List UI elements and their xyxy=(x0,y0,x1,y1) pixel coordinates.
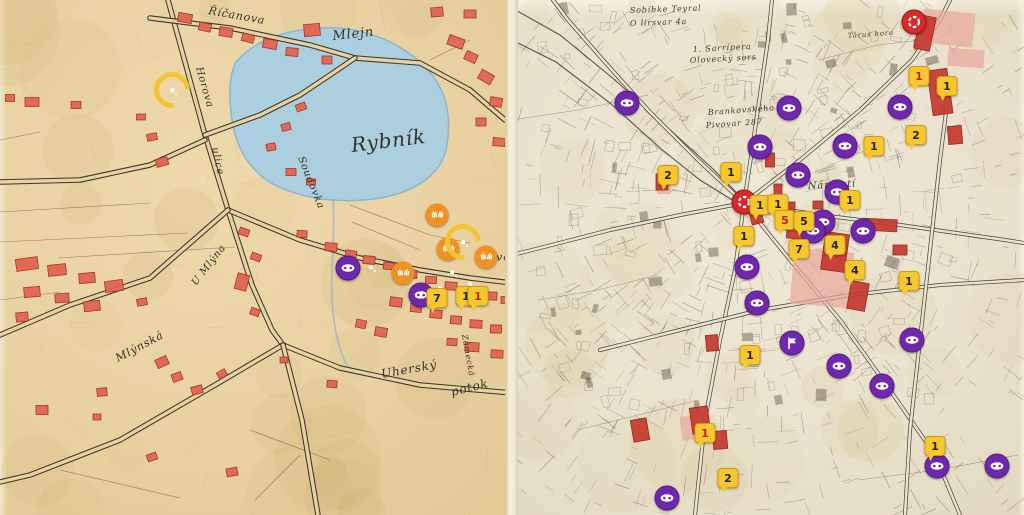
marker-purple-heritage[interactable] xyxy=(900,328,925,353)
marker-cluster-count[interactable]: 4 xyxy=(845,260,866,280)
marker-purple-heritage[interactable] xyxy=(827,354,852,379)
cluster-count-pin: 1 xyxy=(925,436,946,456)
cluster-count-value: 1 xyxy=(905,276,913,287)
marker-cluster-count[interactable]: 2 xyxy=(658,165,679,185)
marker-purple-heritage[interactable] xyxy=(888,95,913,120)
spectacles-icon xyxy=(832,361,847,372)
marker-cluster-count[interactable]: 4 xyxy=(825,235,846,255)
cluster-count-value: 1 xyxy=(870,141,878,152)
marker-purple-heritage[interactable] xyxy=(735,255,760,280)
cluster-count-pin: 7 xyxy=(427,288,448,308)
spectacles-icon xyxy=(791,170,806,181)
marker-purple-heritage[interactable] xyxy=(748,135,773,160)
cluster-count-pin: 1 xyxy=(734,226,755,246)
marker-purple-heritage[interactable] xyxy=(870,374,895,399)
cluster-count-value: 1 xyxy=(756,200,764,211)
cluster-count-value: 1 xyxy=(701,428,709,439)
spectacles-icon xyxy=(893,102,908,113)
spectacles-icon xyxy=(341,263,356,274)
cluster-count-value: 5 xyxy=(800,216,808,227)
cluster-count-value: 1 xyxy=(474,291,482,302)
marker-cluster-count[interactable]: 1 xyxy=(925,436,946,456)
cluster-count-value: 1 xyxy=(746,350,754,361)
spectacles-icon xyxy=(620,98,635,109)
marker-purple-heritage[interactable] xyxy=(786,163,811,188)
blessing-hands-icon xyxy=(479,252,493,263)
cluster-count-value: 1 xyxy=(943,81,951,92)
marker-purple-heritage[interactable] xyxy=(655,486,680,511)
spectacles-icon xyxy=(782,103,797,114)
marker-cluster-count[interactable]: 1 xyxy=(864,136,885,156)
spectacles-icon xyxy=(856,226,871,237)
cluster-count-value: 1 xyxy=(740,231,748,242)
map-label: O lirsvar 4a xyxy=(630,17,688,28)
cluster-count-pin: 1 xyxy=(468,286,489,306)
spectacles-icon xyxy=(838,141,853,152)
broken-ring-icon xyxy=(907,15,922,30)
map-comparison-view: ŘíčanovaMlejnRybníkSoudovkaHorovauliceU … xyxy=(0,0,1024,515)
marker-cluster-count[interactable]: 1 xyxy=(937,76,958,96)
cluster-count-pin: 1 xyxy=(740,345,761,365)
marker-cluster-count[interactable]: 1 xyxy=(899,271,920,291)
spectacles-icon xyxy=(750,298,765,309)
cluster-count-pin: 1 xyxy=(840,190,861,210)
spectacles-icon xyxy=(990,461,1005,472)
marker-cluster-count[interactable]: 2 xyxy=(906,125,927,145)
marker-purple-heritage[interactable] xyxy=(336,256,361,281)
cluster-count-value: 1 xyxy=(846,195,854,206)
cluster-count-value: 1 xyxy=(915,71,923,82)
cluster-count-pin: 5 xyxy=(775,210,796,230)
marker-cluster-count[interactable]: 1 xyxy=(840,190,861,210)
cluster-count-pin: 2 xyxy=(718,468,739,488)
marker-orange-heritage[interactable] xyxy=(392,262,415,285)
cluster-count-value: 7 xyxy=(795,244,803,255)
marker-purple-heritage[interactable] xyxy=(777,96,802,121)
marker-purple-flag[interactable] xyxy=(780,331,805,356)
cluster-count-value: 4 xyxy=(831,240,839,251)
cluster-count-value: 5 xyxy=(781,215,789,226)
cluster-count-pin: 4 xyxy=(825,235,846,255)
spectacles-icon xyxy=(660,493,675,504)
marker-purple-heritage[interactable] xyxy=(851,219,876,244)
cluster-count-value: 1 xyxy=(931,441,939,452)
blessing-hands-icon xyxy=(396,268,410,279)
cluster-count-value: 2 xyxy=(724,473,732,484)
marker-cluster-count[interactable]: 5 xyxy=(775,210,796,230)
marker-cluster-count[interactable]: 1 xyxy=(468,286,489,306)
marker-purple-heritage[interactable] xyxy=(985,454,1010,479)
marker-cluster-count[interactable]: 1 xyxy=(909,66,930,86)
cluster-count-value: 7 xyxy=(433,293,441,304)
cluster-count-value: 1 xyxy=(727,167,735,178)
marker-purple-heritage[interactable] xyxy=(615,91,640,116)
marker-cluster-count[interactable]: 1 xyxy=(695,423,716,443)
spectacles-icon xyxy=(875,381,890,392)
flag-icon xyxy=(786,337,799,350)
cluster-count-value: 1 xyxy=(774,199,782,210)
cluster-count-pin: 1 xyxy=(909,66,930,86)
cluster-count-pin: 1 xyxy=(721,162,742,182)
cluster-count-pin: 2 xyxy=(906,125,927,145)
marker-purple-heritage[interactable] xyxy=(833,134,858,159)
cluster-count-pin: 2 xyxy=(658,165,679,185)
cluster-count-pin: 7 xyxy=(789,239,810,259)
marker-cluster-count[interactable]: 1 xyxy=(734,226,755,246)
marker-red-heritage[interactable] xyxy=(902,10,927,35)
panel-seam xyxy=(505,0,518,515)
cluster-count-value: 4 xyxy=(851,265,859,276)
cluster-count-pin: 1 xyxy=(864,136,885,156)
map-panel-historic[interactable]: ŘíčanovaMlejnRybníkSoudovkaHorovauliceU … xyxy=(0,0,505,515)
spectacles-icon xyxy=(905,335,920,346)
cluster-count-pin: 1 xyxy=(695,423,716,443)
cluster-count-pin: 1 xyxy=(937,76,958,96)
marker-cluster-count[interactable]: 2 xyxy=(718,468,739,488)
map-label: Sobíbke Teyral xyxy=(630,4,702,15)
cluster-count-pin: 4 xyxy=(845,260,866,280)
cluster-count-value: 2 xyxy=(664,170,672,181)
cluster-count-pin: 1 xyxy=(899,271,920,291)
spectacles-icon xyxy=(740,262,755,273)
cluster-count-pin: 5 xyxy=(794,211,815,231)
marker-cluster-count[interactable]: 7 xyxy=(789,239,810,259)
marker-purple-heritage[interactable] xyxy=(745,291,770,316)
cluster-count-value: 2 xyxy=(912,130,920,141)
marker-orange-heritage[interactable] xyxy=(426,204,449,227)
marker-cluster-count[interactable]: 1 xyxy=(721,162,742,182)
marker-cluster-count[interactable]: 5 xyxy=(794,211,815,231)
blessing-hands-icon xyxy=(430,210,444,221)
marker-cluster-count[interactable]: 7 xyxy=(427,288,448,308)
historic-map-canvas: ŘíčanovaMlejnRybníkSoudovkaHorovauliceU … xyxy=(0,0,505,515)
spectacles-icon xyxy=(753,142,768,153)
marker-cluster-count[interactable]: 1 xyxy=(740,345,761,365)
